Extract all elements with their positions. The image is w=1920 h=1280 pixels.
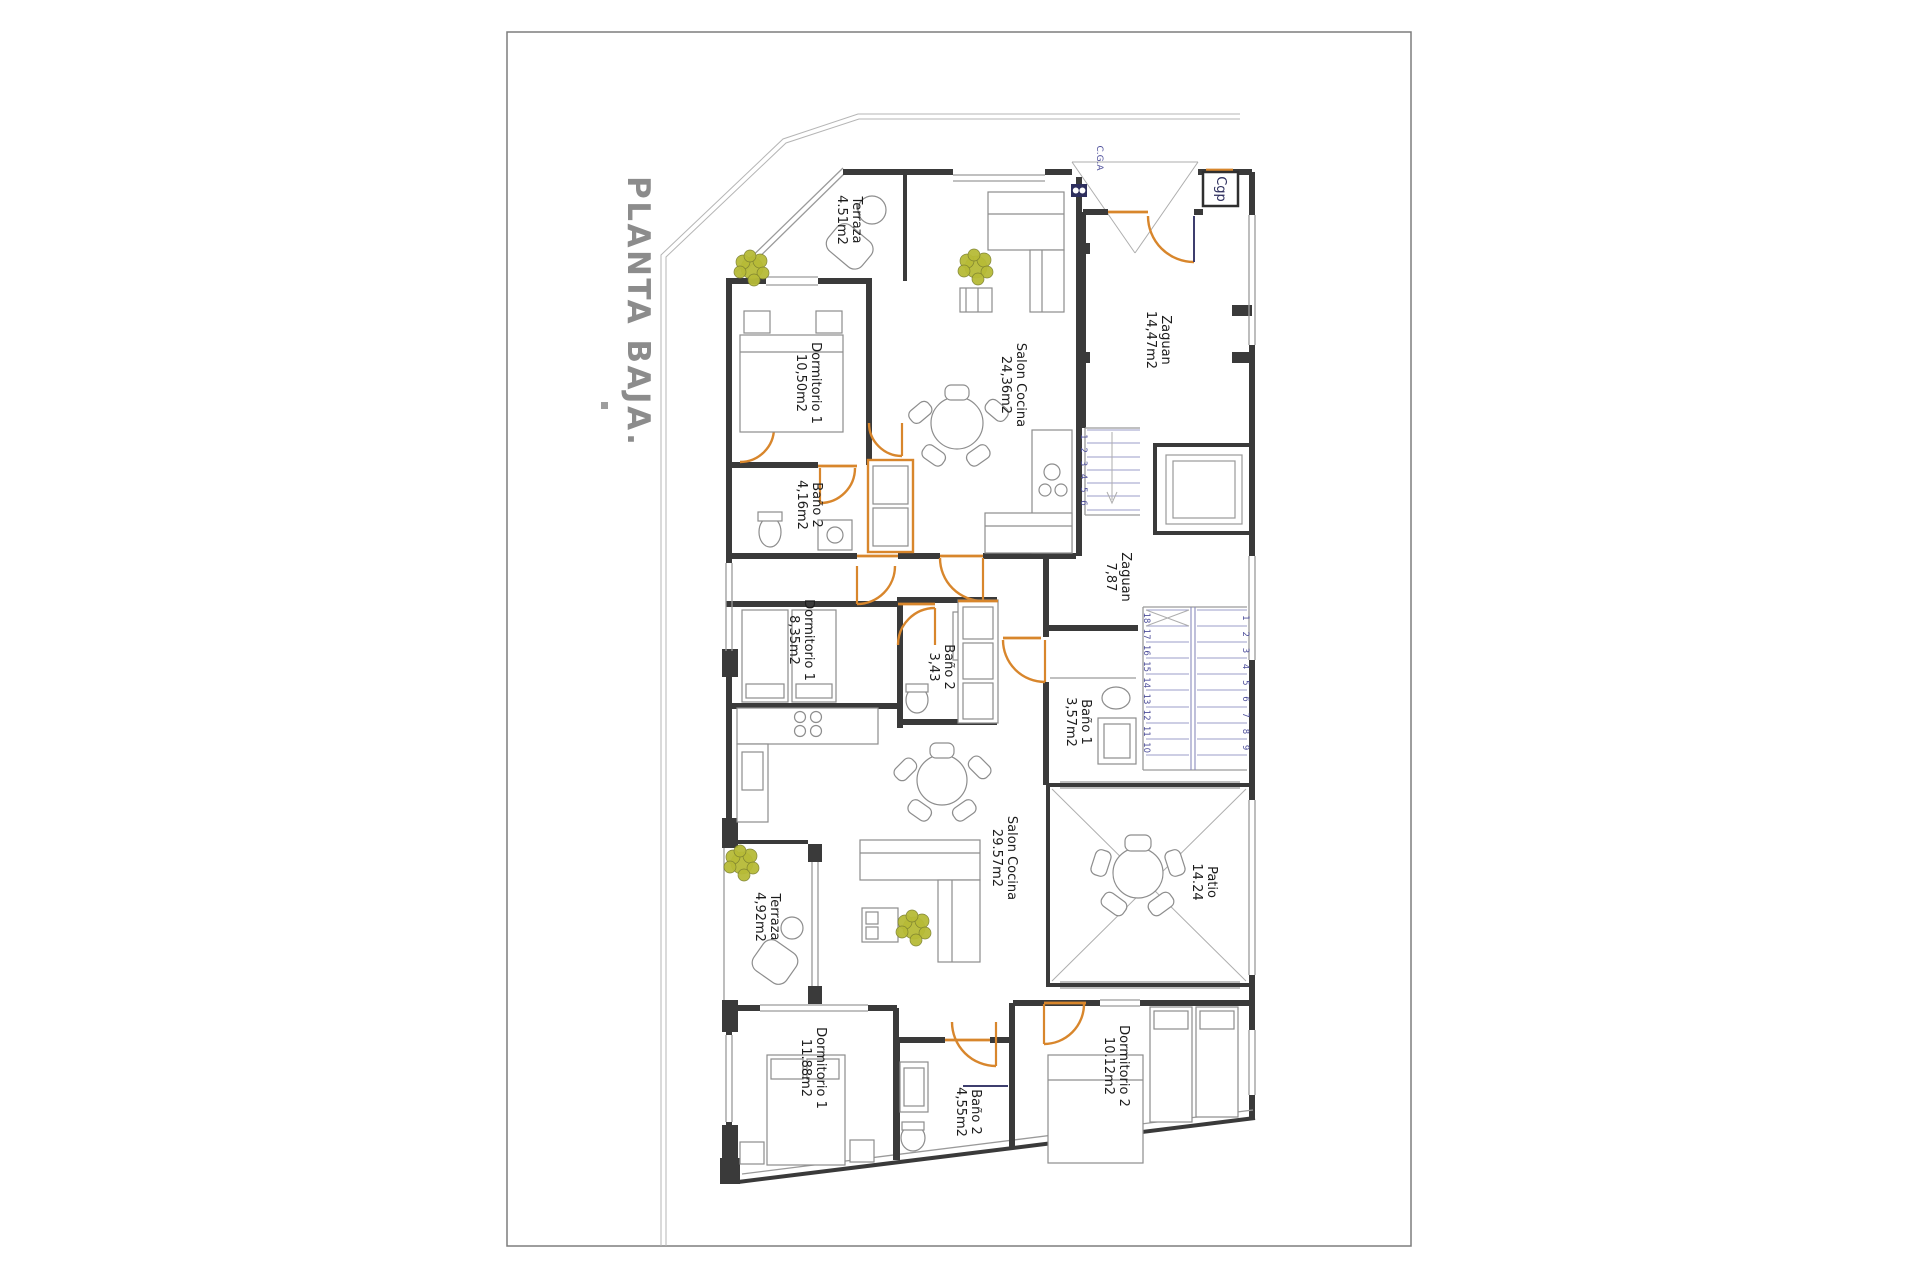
stair-step-number: 12: [1141, 710, 1151, 721]
svg-text:Zaguan: Zaguan: [1118, 552, 1133, 602]
boundary-marker: [601, 402, 608, 409]
stair-step-number: 10: [1141, 742, 1151, 753]
svg-text:8,35m2: 8,35m2: [786, 615, 801, 665]
svg-text:14,47m2: 14,47m2: [1143, 311, 1158, 369]
stair-step-number: 5: [1240, 680, 1250, 685]
svg-text:Terraza: Terraza: [849, 196, 864, 244]
svg-text:4.51m2: 4.51m2: [834, 195, 849, 245]
stair-step-number: 2: [1240, 631, 1250, 636]
svg-text:Zaguan: Zaguan: [1158, 315, 1173, 365]
svg-text:Terraza: Terraza: [767, 893, 782, 941]
svg-text:29.57m2: 29.57m2: [989, 829, 1004, 887]
stair-step-number: 16: [1141, 645, 1151, 656]
stair-step-number: 3: [1240, 648, 1250, 653]
stair-step-number: 17: [1141, 629, 1151, 640]
cgp-box: Cgp: [1203, 172, 1238, 206]
stair-step-number: 8: [1240, 729, 1250, 734]
room-label-bano2-455: Baño 2 4,55m2: [953, 1087, 983, 1137]
stair-step-number: 1: [1078, 434, 1088, 439]
svg-text:Dormitorio 1: Dormitorio 1: [801, 599, 816, 681]
stair-step-number: 4: [1240, 664, 1250, 669]
svg-text:4,92m2: 4,92m2: [752, 892, 767, 942]
room-label-dormitorio1-1050: Dormitorio 1 10,50m2: [793, 342, 823, 424]
stair-step-number: 6: [1078, 500, 1088, 505]
svg-text:4,55m2: 4,55m2: [953, 1087, 968, 1137]
svg-text:10,50m2: 10,50m2: [793, 354, 808, 412]
svg-text:3,43: 3,43: [926, 653, 941, 682]
svg-text:Dormitorio 2: Dormitorio 2: [1116, 1025, 1131, 1107]
svg-text:14.24: 14.24: [1189, 863, 1204, 900]
stair-step-number: 15: [1141, 661, 1151, 672]
stair-step-number: 6: [1240, 696, 1250, 701]
stair-step-number: 18: [1141, 613, 1151, 624]
stair-step-number: 2: [1078, 447, 1088, 452]
svg-text:Dormitorio 1: Dormitorio 1: [813, 1027, 828, 1109]
room-label-zaguan-1447: Zaguan 14,47m2: [1143, 311, 1173, 369]
stair-step-number: 5: [1078, 487, 1088, 492]
svg-text:Baño 1: Baño 1: [1078, 699, 1093, 744]
svg-text:Salon Cocina: Salon Cocina: [1004, 816, 1019, 900]
stair-step-number: 7: [1240, 712, 1250, 717]
room-label-dormitorio1-1188: Dormitorio 1 11.88m2: [798, 1027, 828, 1109]
room-label-bano1-357: Baño 1 3,57m2: [1063, 697, 1093, 747]
floor-plan-sheet: PLANTA BAJA.: [0, 0, 1920, 1280]
svg-text:24,36m2: 24,36m2: [998, 356, 1013, 414]
svg-text:10.12m2: 10.12m2: [1101, 1037, 1116, 1095]
svg-text:3,57m2: 3,57m2: [1063, 697, 1078, 747]
svg-text:7,87: 7,87: [1103, 563, 1118, 592]
svg-text:Salon Cocina: Salon Cocina: [1013, 343, 1028, 427]
stair-step-number: 14: [1141, 677, 1151, 688]
room-label-terraza-492: Terraza 4,92m2: [752, 892, 782, 942]
stair-step-number: 1: [1240, 615, 1250, 620]
svg-text:Patio: Patio: [1204, 866, 1219, 898]
svg-text:Dormitorio 1: Dormitorio 1: [808, 342, 823, 424]
stair-step-number: 13: [1141, 694, 1151, 705]
svg-text:Baño 2: Baño 2: [941, 644, 956, 689]
stair-step-number: 9: [1240, 745, 1250, 750]
stair-step-number: 3: [1078, 461, 1088, 466]
electrical-symbol: [1071, 184, 1087, 197]
stair-step-number: 11: [1141, 726, 1151, 737]
room-label-bano2-416: Baño 2 4,16m2: [794, 480, 824, 530]
svg-text:Baño 2: Baño 2: [968, 1089, 983, 1134]
svg-text:11.88m2: 11.88m2: [798, 1039, 813, 1097]
room-label-terraza-451: Terraza 4.51m2: [834, 195, 864, 245]
cgp-label: Cgp: [1213, 176, 1228, 202]
room-label-patio-1424: Patio 14.24: [1189, 863, 1219, 900]
page-title: PLANTA BAJA.: [620, 176, 656, 447]
stair-step-number: 4: [1078, 474, 1088, 479]
room-label-dormitorio2-1012: Dormitorio 2 10.12m2: [1101, 1025, 1131, 1107]
svg-text:Baño 2: Baño 2: [809, 482, 824, 527]
svg-text:4,16m2: 4,16m2: [794, 480, 809, 530]
cga-label: C.G.A: [1094, 145, 1104, 171]
